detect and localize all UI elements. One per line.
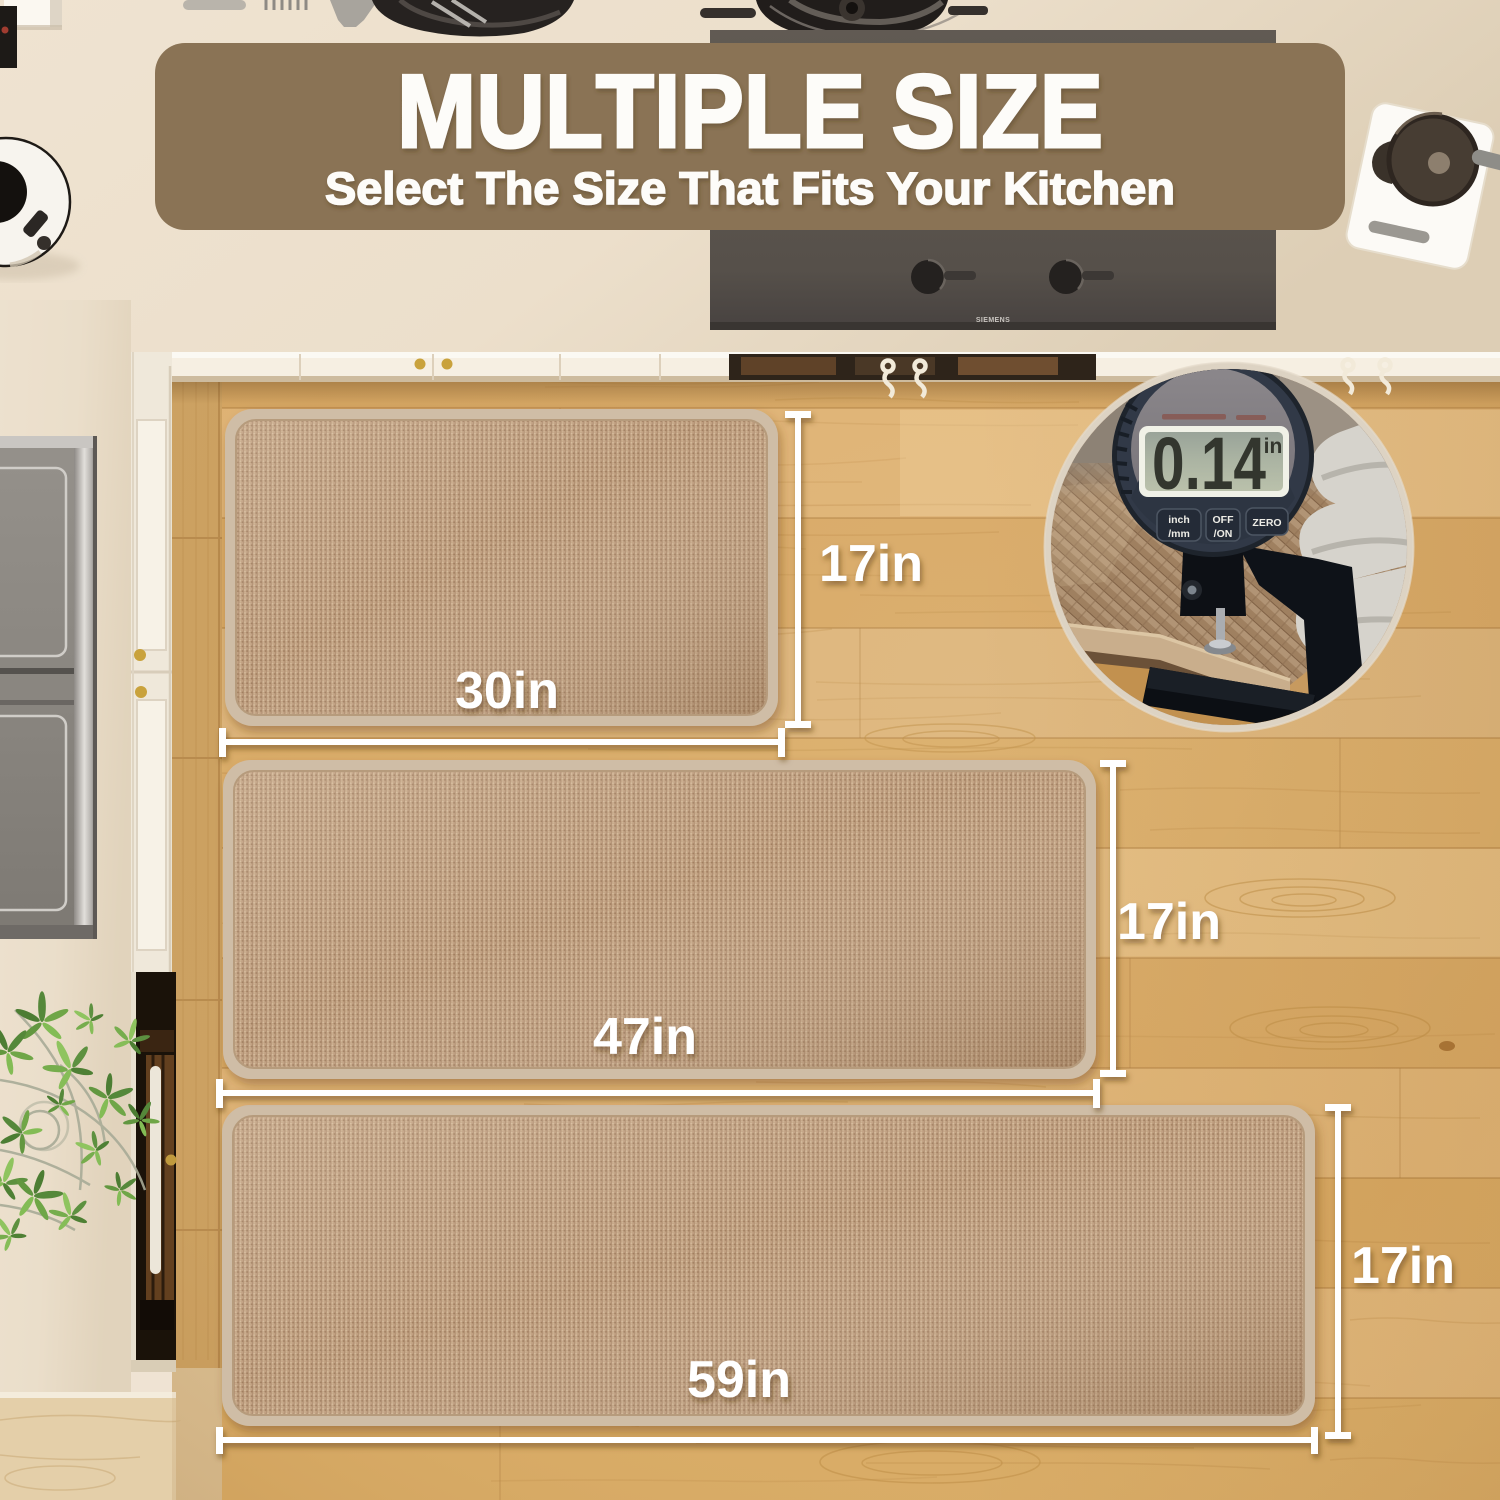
svg-text:17in: 17in [1117, 893, 1221, 951]
svg-text:0.14: 0.14 [1152, 422, 1266, 505]
svg-text:30in: 30in [455, 662, 559, 720]
svg-text:17in: 17in [1351, 1237, 1455, 1295]
svg-text:in: in [1264, 435, 1283, 458]
svg-text:/ON: /ON [1214, 528, 1233, 540]
svg-text:17in: 17in [819, 535, 923, 593]
svg-text:MULTIPLE SIZE: MULTIPLE SIZE [397, 54, 1103, 170]
svg-text:59in: 59in [687, 1351, 791, 1409]
svg-text:ZERO: ZERO [1252, 517, 1281, 529]
svg-text:/mm: /mm [1168, 528, 1190, 540]
svg-text:47in: 47in [593, 1008, 697, 1066]
svg-text:SIEMENS: SIEMENS [976, 317, 1010, 324]
svg-text:Select The Size That Fits Your: Select The Size That Fits Your Kitchen [325, 163, 1175, 214]
svg-text:OFF: OFF [1213, 514, 1235, 526]
svg-text:inch: inch [1168, 514, 1190, 526]
